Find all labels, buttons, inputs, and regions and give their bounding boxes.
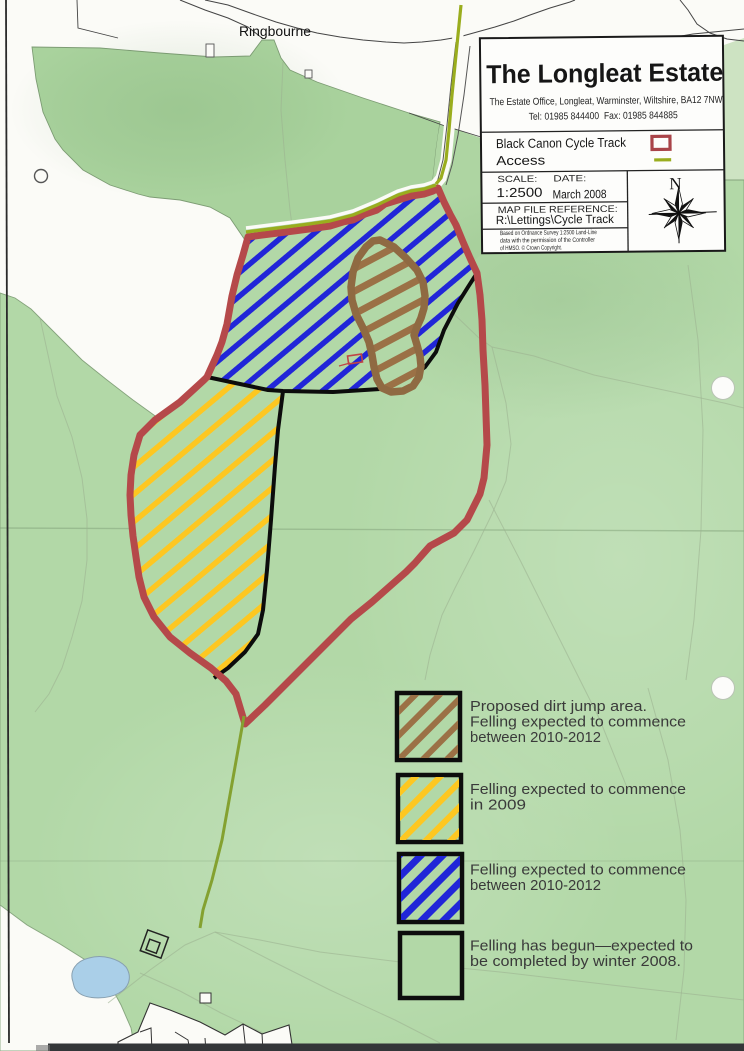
svg-text:Black Canon Cycle Track: Black Canon Cycle Track (496, 135, 627, 151)
svg-text:Ringbourne: Ringbourne (239, 24, 311, 39)
svg-text:data with the permission of th: data with the permission of the Controll… (500, 237, 595, 245)
svg-text:R:\Lettings\Cycle Track: R:\Lettings\Cycle Track (496, 212, 615, 227)
svg-text:Tel: 01985 844400 Fax: 01985: Tel: 01985 844400 Fax: 01985 844885 (529, 110, 678, 123)
svg-text:of HMSO. © Crown Copyright.: of HMSO. © Crown Copyright. (500, 243, 562, 252)
svg-text:1:2500: 1:2500 (496, 185, 542, 200)
svg-text:be completed by winter 2008.: be completed by winter 2008. (470, 953, 681, 970)
svg-text:SCALE:: SCALE: (497, 174, 537, 184)
svg-text:between 2010-2012: between 2010-2012 (470, 877, 601, 894)
svg-text:between 2010-2012: between 2010-2012 (470, 729, 601, 746)
svg-text:Access: Access (496, 153, 546, 169)
svg-text:March 2008: March 2008 (552, 187, 606, 202)
svg-text:DATE:: DATE: (553, 173, 586, 183)
svg-text:in 2009: in 2009 (470, 796, 526, 813)
svg-text:The Longleat Estate: The Longleat Estate (486, 57, 723, 89)
